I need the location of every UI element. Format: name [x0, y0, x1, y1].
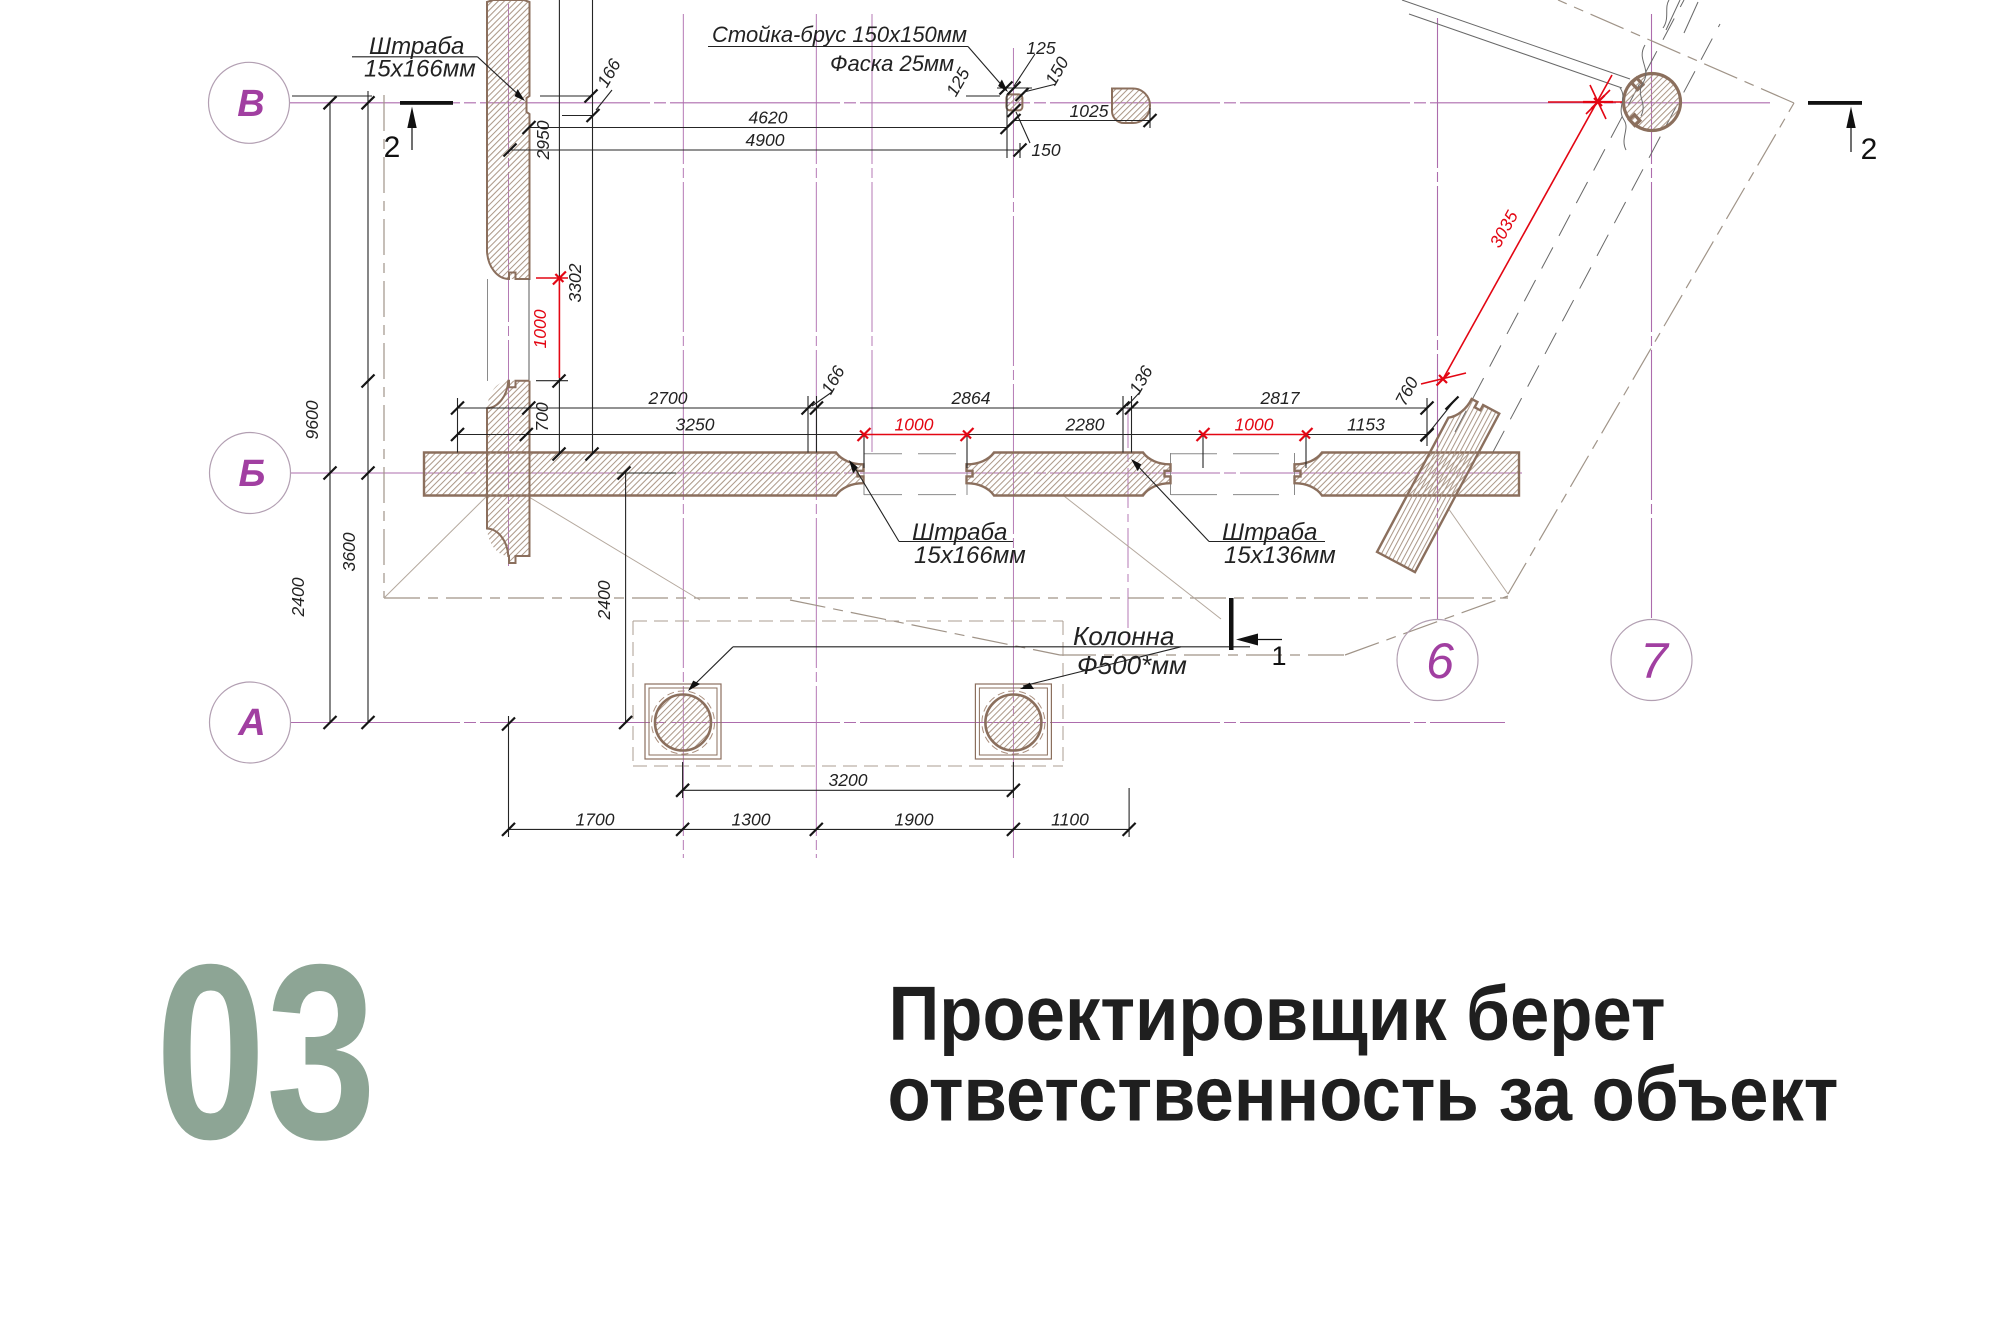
svg-text:Проектировщик берет: Проектировщик берет [889, 970, 1666, 1056]
svg-text:1900: 1900 [895, 809, 934, 829]
svg-text:1153: 1153 [1347, 415, 1385, 435]
svg-text:2400: 2400 [288, 577, 308, 617]
svg-text:2: 2 [1861, 133, 1878, 166]
svg-text:1700: 1700 [576, 809, 615, 829]
svg-text:Колонна: Колонна [1073, 621, 1174, 651]
svg-text:1300: 1300 [732, 809, 771, 829]
svg-text:4620: 4620 [749, 108, 788, 128]
svg-text:Ф500*мм: Ф500*мм [1077, 650, 1187, 680]
svg-text:1100: 1100 [1051, 809, 1089, 829]
svg-text:15х166мм: 15х166мм [914, 542, 1026, 569]
svg-text:3302: 3302 [565, 263, 585, 302]
svg-text:150: 150 [1031, 140, 1060, 160]
svg-text:15х166мм: 15х166мм [364, 56, 476, 83]
svg-text:Стойка-брус 150х150мм: Стойка-брус 150х150мм [712, 22, 967, 47]
svg-text:1025: 1025 [1070, 101, 1109, 121]
svg-text:03: 03 [156, 912, 377, 1191]
svg-text:Б: Б [239, 453, 266, 495]
svg-text:А: А [237, 702, 265, 744]
svg-text:3250: 3250 [676, 415, 715, 435]
svg-text:2950: 2950 [533, 120, 553, 160]
svg-text:2864: 2864 [951, 388, 991, 408]
svg-text:700: 700 [532, 402, 552, 431]
svg-text:3600: 3600 [339, 532, 359, 571]
svg-text:7: 7 [1640, 633, 1670, 689]
svg-text:4900: 4900 [746, 130, 785, 150]
svg-text:2700: 2700 [648, 388, 688, 408]
svg-text:2: 2 [384, 131, 401, 164]
svg-text:2280: 2280 [1065, 415, 1105, 435]
svg-text:1000: 1000 [1235, 415, 1274, 435]
svg-text:9600: 9600 [302, 400, 322, 439]
svg-text:1000: 1000 [530, 309, 550, 348]
svg-text:2817: 2817 [1260, 388, 1301, 408]
svg-text:6: 6 [1426, 633, 1454, 689]
svg-text:1: 1 [1271, 641, 1286, 671]
svg-text:Фаска 25мм: Фаска 25мм [830, 51, 954, 76]
svg-text:ответственность за объект: ответственность за объект [888, 1051, 1839, 1137]
svg-text:125: 125 [1026, 38, 1055, 58]
svg-text:1000: 1000 [895, 415, 934, 435]
svg-text:В: В [237, 83, 264, 125]
svg-text:2400: 2400 [594, 580, 614, 620]
svg-text:15х136мм: 15х136мм [1224, 542, 1336, 569]
svg-text:3200: 3200 [829, 770, 868, 790]
